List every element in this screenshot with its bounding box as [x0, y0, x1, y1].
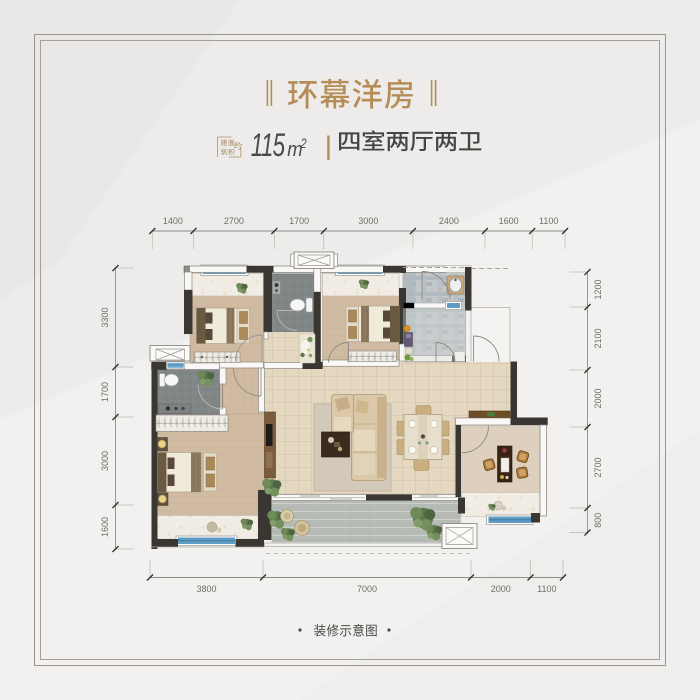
svg-text:3800: 3800 — [196, 584, 216, 594]
svg-text:2: 2 — [300, 136, 307, 151]
svg-text:1600: 1600 — [100, 517, 110, 537]
svg-text:2000: 2000 — [491, 584, 511, 594]
svg-text:3000: 3000 — [100, 451, 110, 471]
svg-text:1100: 1100 — [537, 584, 556, 594]
svg-text:1100: 1100 — [539, 216, 558, 226]
svg-text:3300: 3300 — [100, 307, 110, 327]
svg-text:3000: 3000 — [358, 216, 378, 226]
svg-text:2100: 2100 — [593, 328, 603, 348]
svg-text:2000: 2000 — [593, 388, 603, 408]
svg-text:1700: 1700 — [100, 382, 110, 402]
svg-text:800: 800 — [593, 513, 603, 528]
svg-text:115: 115 — [251, 127, 286, 163]
svg-text:7000: 7000 — [357, 584, 377, 594]
svg-text:1600: 1600 — [499, 216, 519, 226]
svg-text:2700: 2700 — [593, 457, 603, 477]
svg-text:2400: 2400 — [439, 216, 459, 226]
svg-text:1700: 1700 — [289, 216, 309, 226]
svg-text:2700: 2700 — [224, 216, 244, 226]
svg-text:1200: 1200 — [593, 279, 603, 299]
svg-text:1400: 1400 — [163, 216, 183, 226]
